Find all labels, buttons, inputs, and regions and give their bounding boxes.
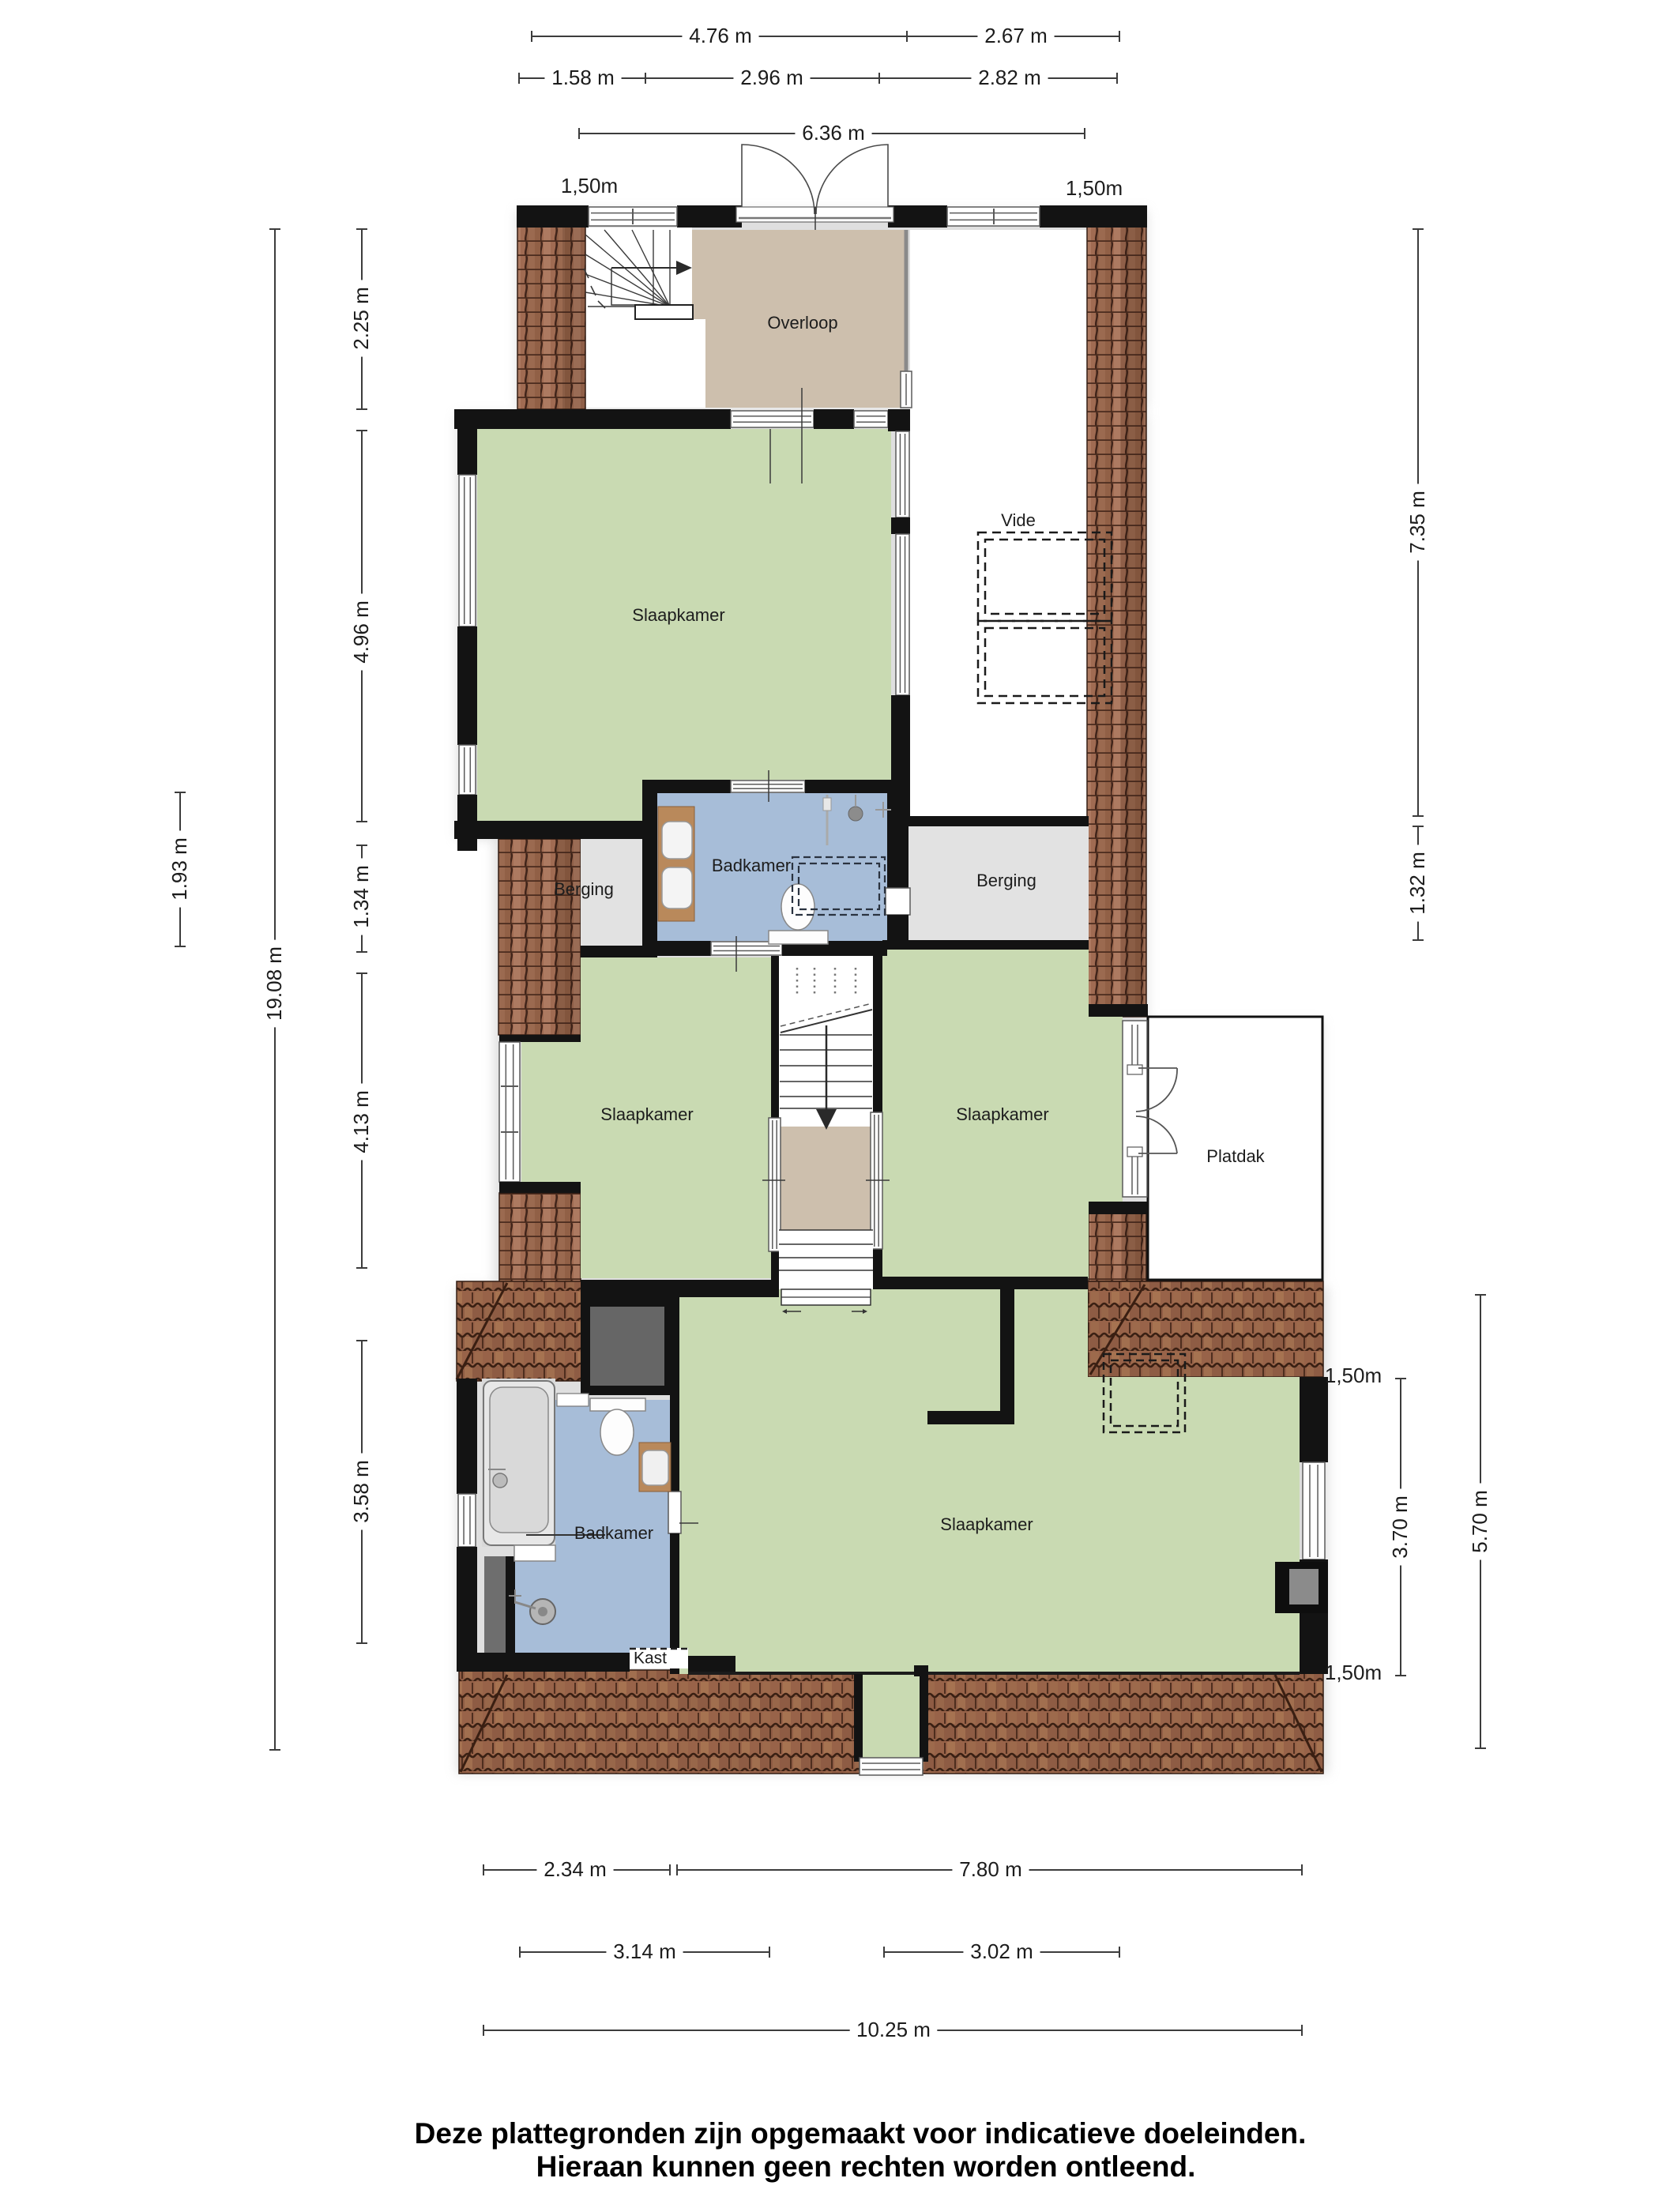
svg-text:Badkamer: Badkamer (712, 856, 791, 875)
svg-text:5.70 m: 5.70 m (1468, 1490, 1492, 1553)
svg-text:3.58 m: 3.58 m (349, 1460, 373, 1523)
svg-text:1.93 m: 1.93 m (167, 837, 191, 901)
svg-text:Slaapkamer: Slaapkamer (632, 605, 724, 625)
svg-text:4.13 m: 4.13 m (349, 1090, 373, 1153)
svg-text:2.82 m: 2.82 m (978, 66, 1041, 89)
svg-text:Slaapkamer: Slaapkamer (600, 1104, 693, 1124)
svg-text:Berging: Berging (976, 871, 1036, 890)
svg-text:1.32 m: 1.32 m (1405, 852, 1429, 915)
svg-text:1,50m: 1,50m (1325, 1364, 1382, 1387)
svg-text:2.67 m: 2.67 m (984, 24, 1048, 47)
svg-text:19.08 m: 19.08 m (262, 946, 286, 1021)
svg-text:Badkamer: Badkamer (574, 1523, 653, 1543)
svg-text:1,50m: 1,50m (1325, 1661, 1382, 1684)
svg-text:4.96 m: 4.96 m (349, 600, 373, 664)
svg-text:3.70 m: 3.70 m (1388, 1495, 1412, 1559)
svg-text:2.25 m: 2.25 m (349, 287, 373, 350)
svg-text:Kast: Kast (634, 1650, 667, 1668)
svg-text:Berging: Berging (554, 879, 614, 899)
svg-text:Slaapkamer: Slaapkamer (940, 1514, 1033, 1534)
svg-text:1.34 m: 1.34 m (349, 865, 373, 928)
svg-text:Platdak: Platdak (1206, 1146, 1265, 1166)
svg-text:Slaapkamer: Slaapkamer (956, 1104, 1048, 1124)
svg-text:Deze plattegronden zijn opgema: Deze plattegronden zijn opgemaakt voor i… (415, 2117, 1307, 2150)
svg-text:4.76 m: 4.76 m (689, 24, 752, 47)
svg-text:3.02 m: 3.02 m (970, 1939, 1033, 1963)
svg-text:1,50m: 1,50m (1066, 176, 1123, 200)
svg-text:6.36 m: 6.36 m (802, 121, 865, 145)
svg-text:7.35 m: 7.35 m (1405, 491, 1429, 554)
svg-text:10.25 m: 10.25 m (856, 2018, 931, 2041)
svg-text:Vide: Vide (1001, 510, 1036, 530)
svg-text:3.14 m: 3.14 m (613, 1939, 676, 1963)
svg-text:1.58 m: 1.58 m (551, 66, 615, 89)
svg-text:1,50m: 1,50m (561, 174, 618, 197)
svg-text:2.96 m: 2.96 m (740, 66, 803, 89)
svg-text:Overloop: Overloop (767, 313, 837, 333)
svg-text:Hieraan kunnen geen rechten wo: Hieraan kunnen geen rechten worden ontle… (536, 2150, 1196, 2183)
svg-text:7.80 m: 7.80 m (959, 1857, 1022, 1881)
svg-text:2.34 m: 2.34 m (544, 1857, 607, 1881)
